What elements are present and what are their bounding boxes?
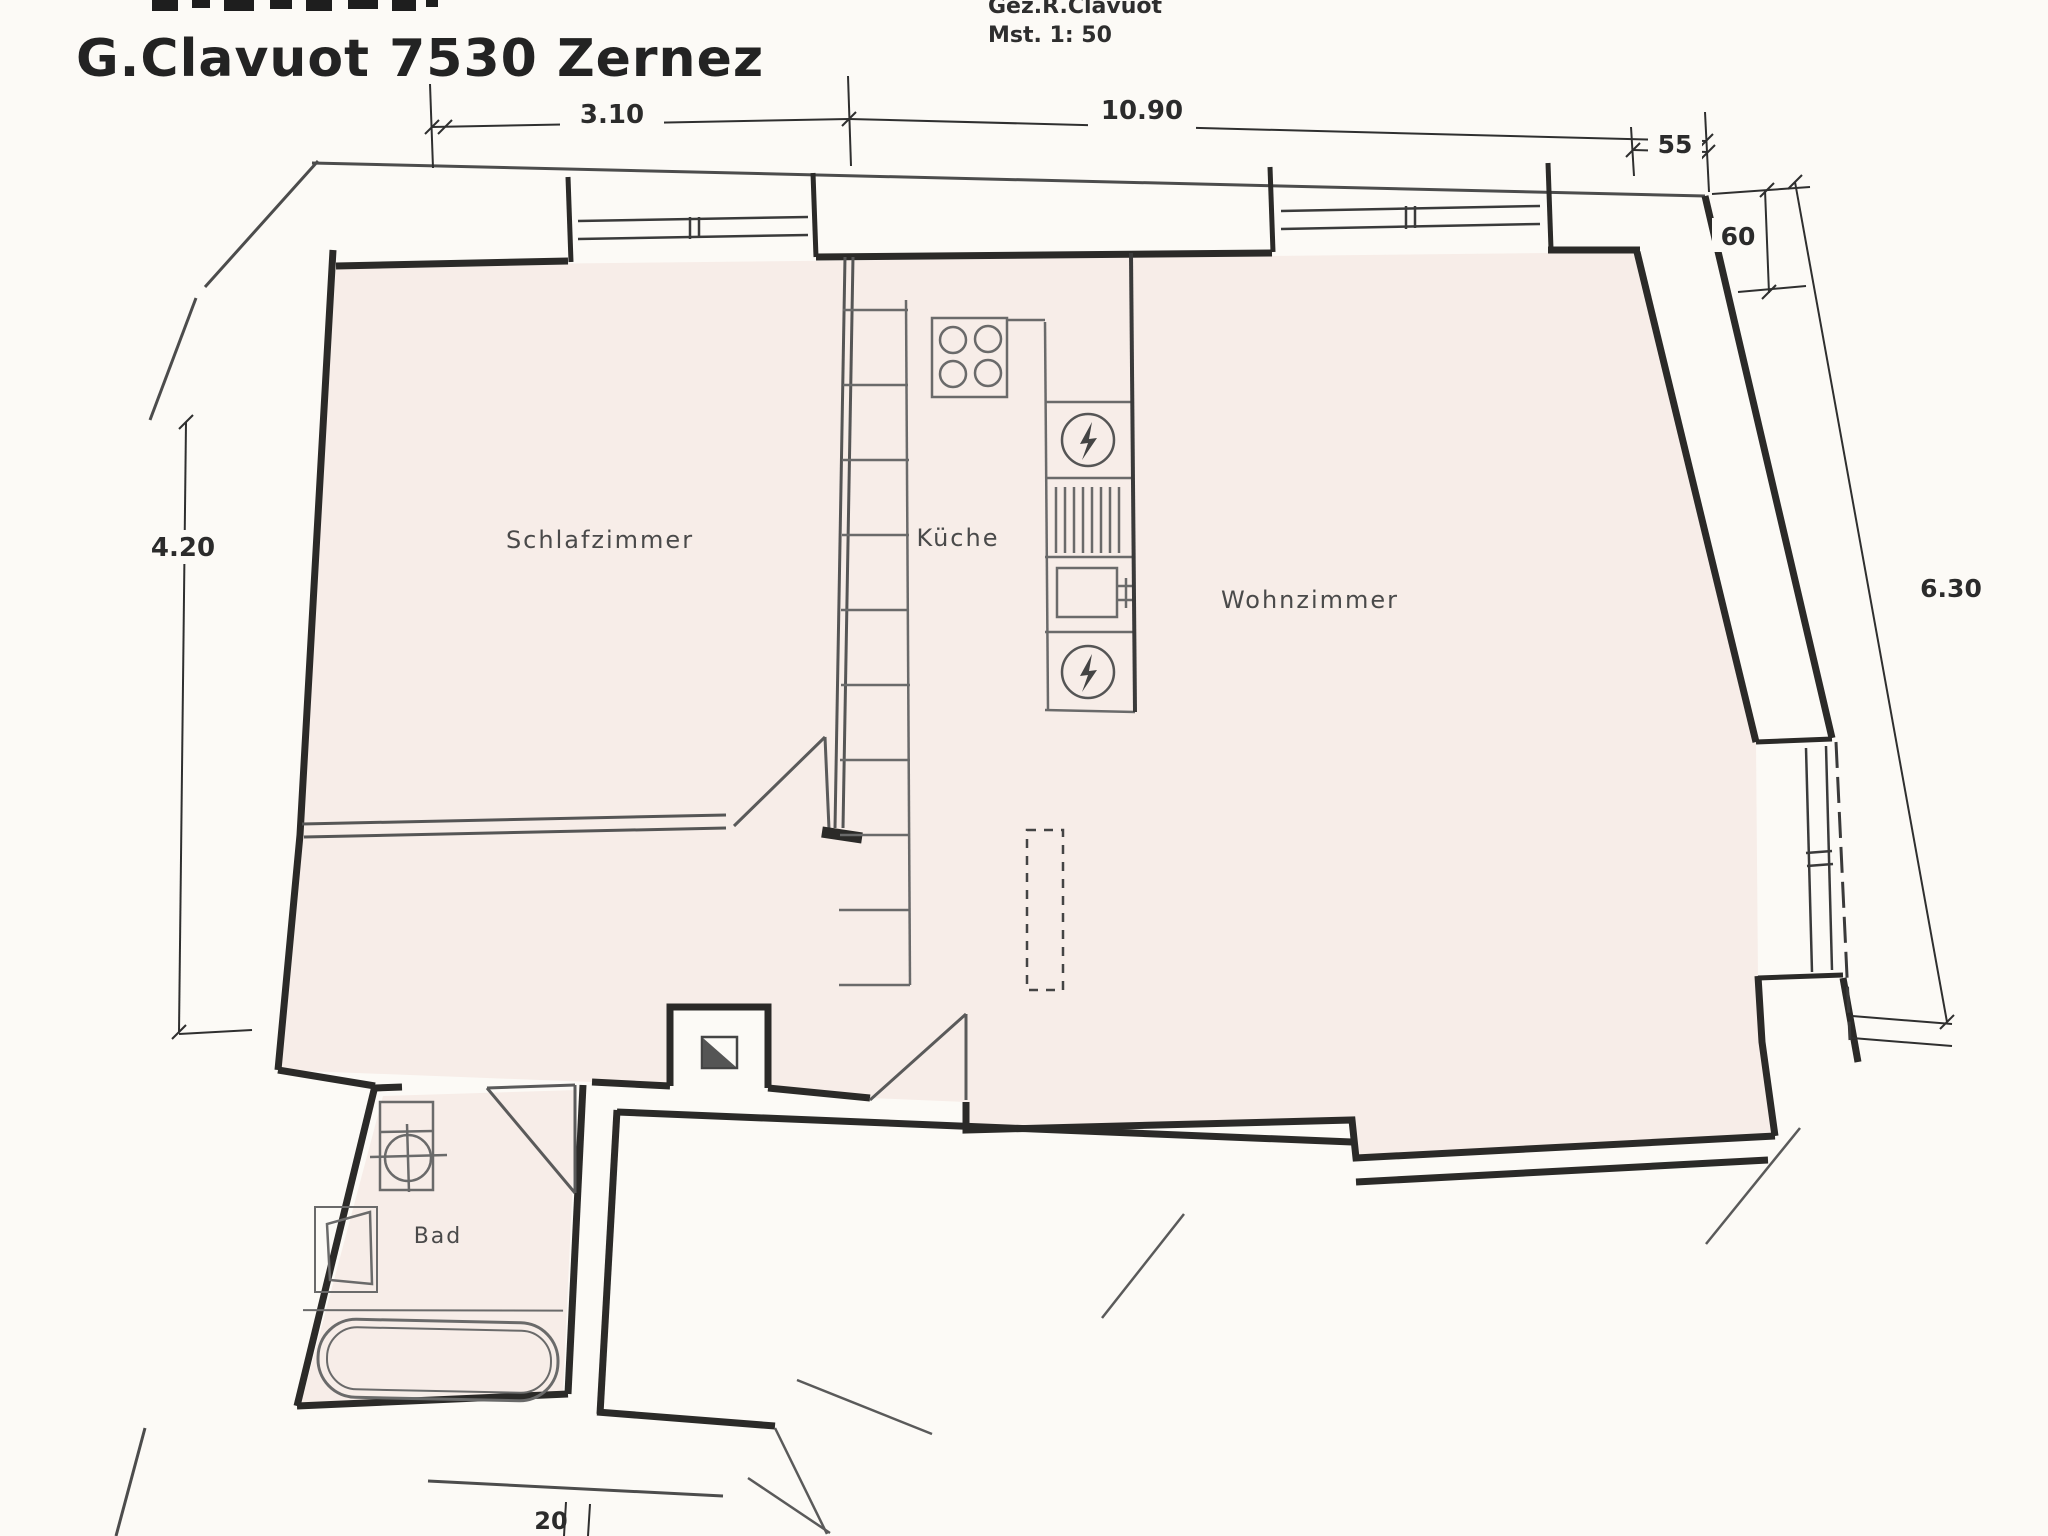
room-label-kitchen: Küche [917, 524, 1000, 552]
dim-left-height: 4.20 [151, 533, 215, 563]
window-icon [568, 163, 1551, 262]
stair-entry-lines [748, 1128, 1800, 1534]
dim-bottom-wall: 20 [534, 1507, 567, 1535]
page-title: G.Clavuot 7530 Zernez [76, 29, 764, 89]
floorplan-sheet: G.Clavuot 7530 Zernez Gez.R.Clavuot Mst.… [0, 0, 2048, 1536]
room-label-living: Wohnzimmer [1221, 586, 1399, 614]
break-mark-icon [1706, 1128, 1800, 1244]
dim-total-width: 10.90 [1101, 96, 1183, 126]
break-mark-icon [1102, 1214, 1184, 1318]
dim-bedroom-width: 3.10 [580, 100, 644, 130]
room-label-bedroom: Schlafzimmer [506, 526, 694, 554]
chimney-icon [702, 1037, 737, 1068]
door-swing-icon-entry [775, 1428, 827, 1534]
scale-note: Mst. 1: 50 [988, 23, 1112, 48]
floorplan-drawing: G.Clavuot 7530 Zernez Gez.R.Clavuot Mst.… [0, 0, 2048, 1536]
dim-wall-right-depth: 60 [1721, 222, 1756, 251]
dim-wall-top-right: 55 [1658, 130, 1693, 159]
drawn-by-note: Gez.R.Clavuot [988, 0, 1162, 19]
floor-fills [278, 252, 1775, 1404]
room-label-bath: Bad [414, 1224, 463, 1249]
dim-right-height: 6.30 [1920, 574, 1982, 603]
apartment-floor [278, 252, 1775, 1158]
cropped-text-marks [152, 0, 438, 11]
